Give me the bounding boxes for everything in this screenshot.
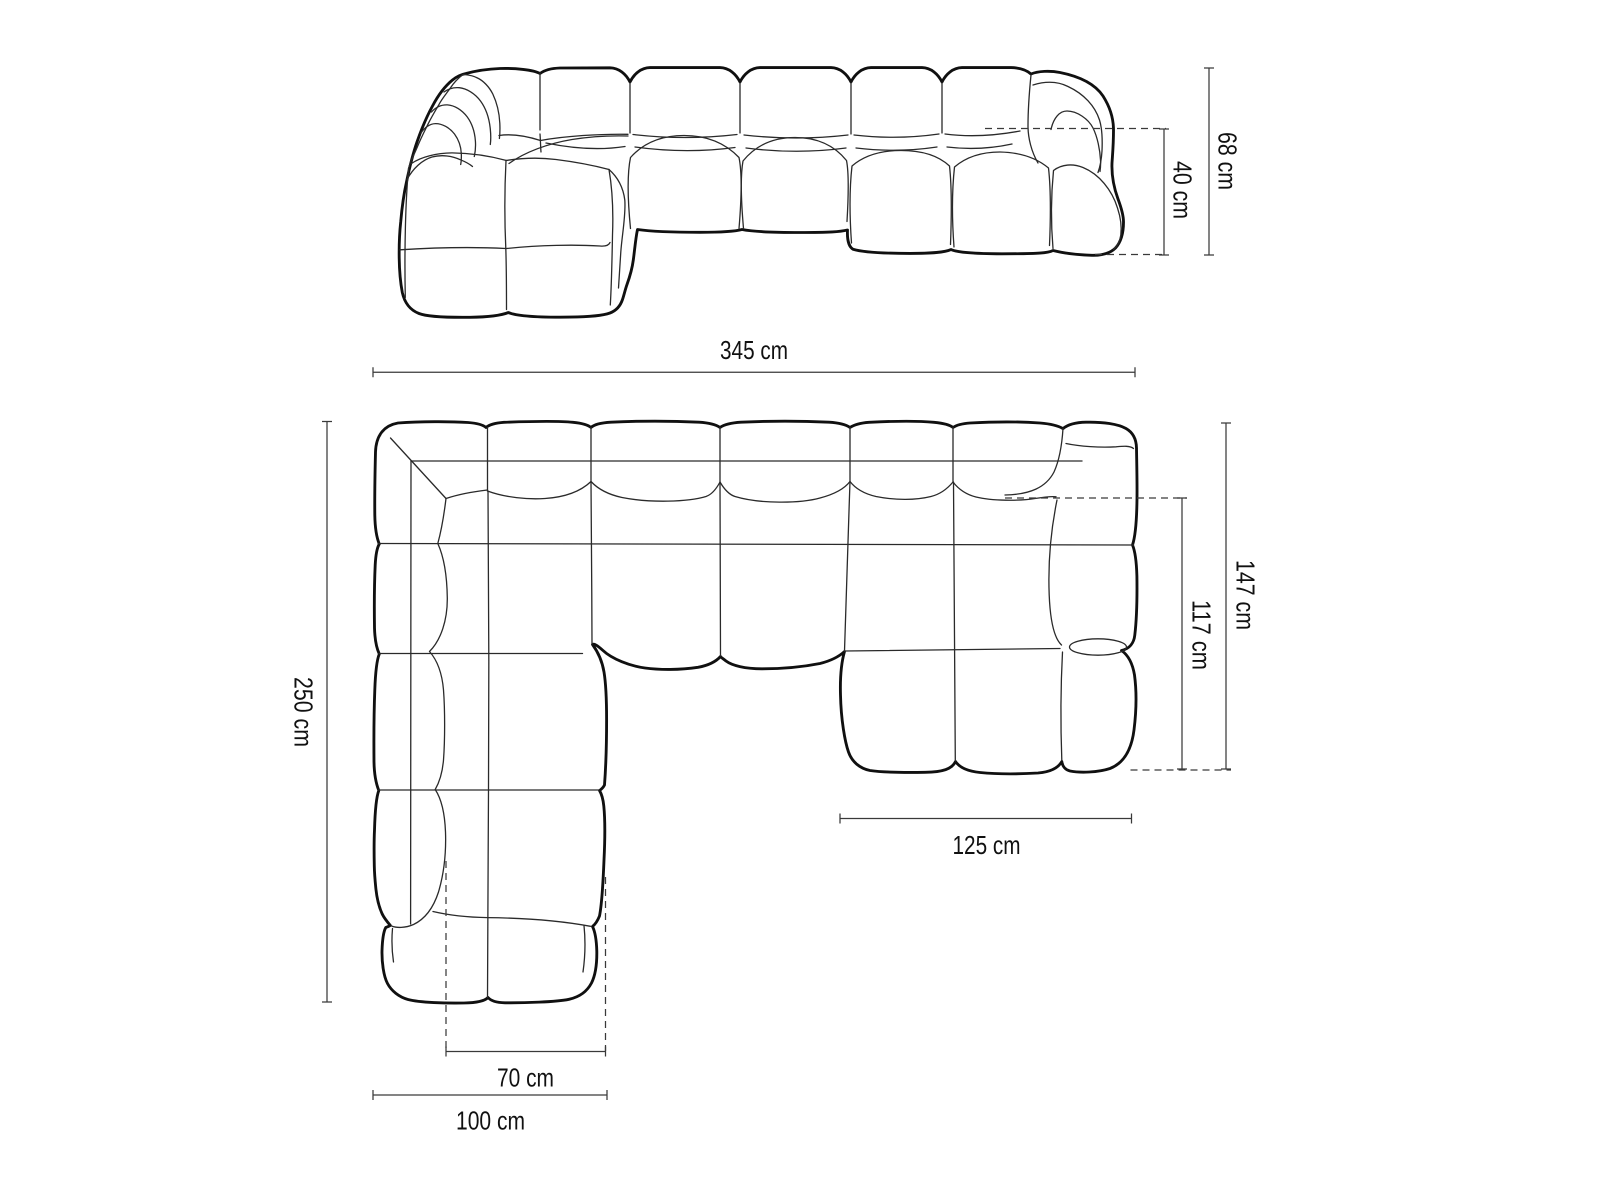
svg-text:125 cm: 125 cm bbox=[953, 830, 1021, 860]
svg-text:70 cm: 70 cm bbox=[497, 1063, 554, 1093]
svg-text:100 cm: 100 cm bbox=[456, 1106, 525, 1136]
svg-text:147 cm: 147 cm bbox=[1231, 560, 1261, 630]
svg-text:68 cm: 68 cm bbox=[1213, 132, 1243, 190]
svg-text:117 cm: 117 cm bbox=[1187, 600, 1217, 670]
svg-text:40 cm: 40 cm bbox=[1168, 161, 1198, 219]
svg-text:250 cm: 250 cm bbox=[289, 677, 319, 747]
svg-text:345 cm: 345 cm bbox=[720, 335, 788, 365]
